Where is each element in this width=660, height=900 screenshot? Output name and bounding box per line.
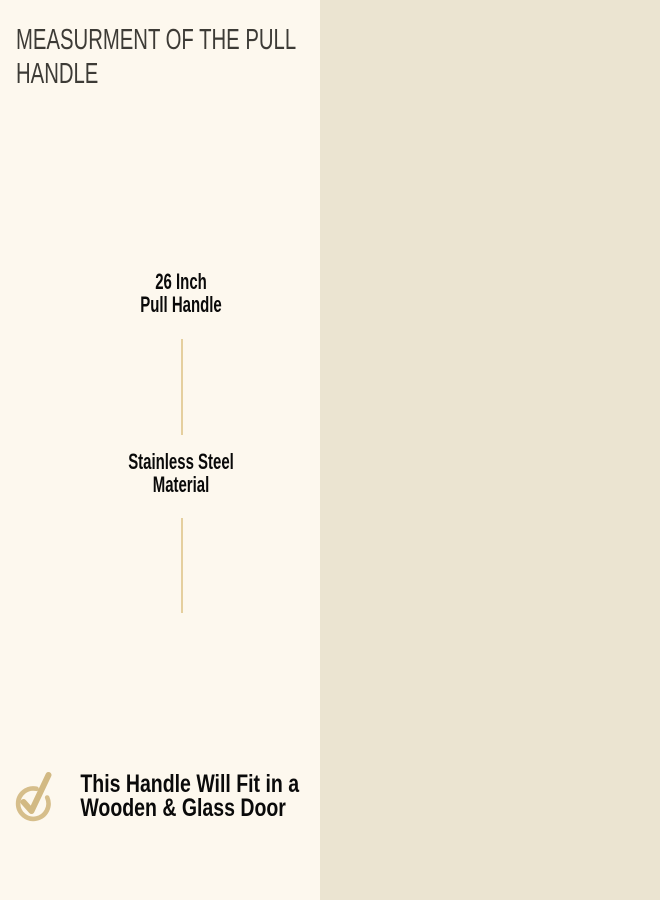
fit-note-line2: Wooden & Glass Door: [80, 796, 281, 820]
spec-material: Stainless Steel Material: [86, 450, 276, 496]
info-panel: MEASURMENT OF THE PULL HANDLE 26 Inch Pu…: [0, 0, 320, 900]
page-title: MEASURMENT OF THE PULL HANDLE: [16, 23, 296, 91]
page-title-line1: MEASURMENT OF THE PULL: [16, 23, 296, 57]
diagram-panel: Hole To Hole 26 Inch 36 Inch: [320, 0, 660, 900]
fit-note-text: This Handle Will Fit in a Wooden & Glass…: [80, 772, 281, 820]
gold-divider: [181, 339, 183, 435]
gold-divider: [181, 518, 183, 613]
product-measurement-diagram: MEASURMENT OF THE PULL HANDLE 26 Inch Pu…: [0, 0, 660, 900]
spec-handle-length-line1: 26 Inch: [86, 270, 276, 293]
spec-material-line1: Stainless Steel: [86, 450, 276, 473]
check-circle-icon: [14, 766, 52, 824]
spec-handle-length: 26 Inch Pull Handle: [86, 270, 276, 316]
page-title-line2: HANDLE: [16, 57, 296, 91]
spec-material-line2: Material: [86, 473, 276, 496]
fit-note-line1: This Handle Will Fit in a: [80, 772, 281, 796]
spec-handle-length-line2: Pull Handle: [86, 293, 276, 316]
fit-note: This Handle Will Fit in a Wooden & Glass…: [0, 766, 320, 836]
